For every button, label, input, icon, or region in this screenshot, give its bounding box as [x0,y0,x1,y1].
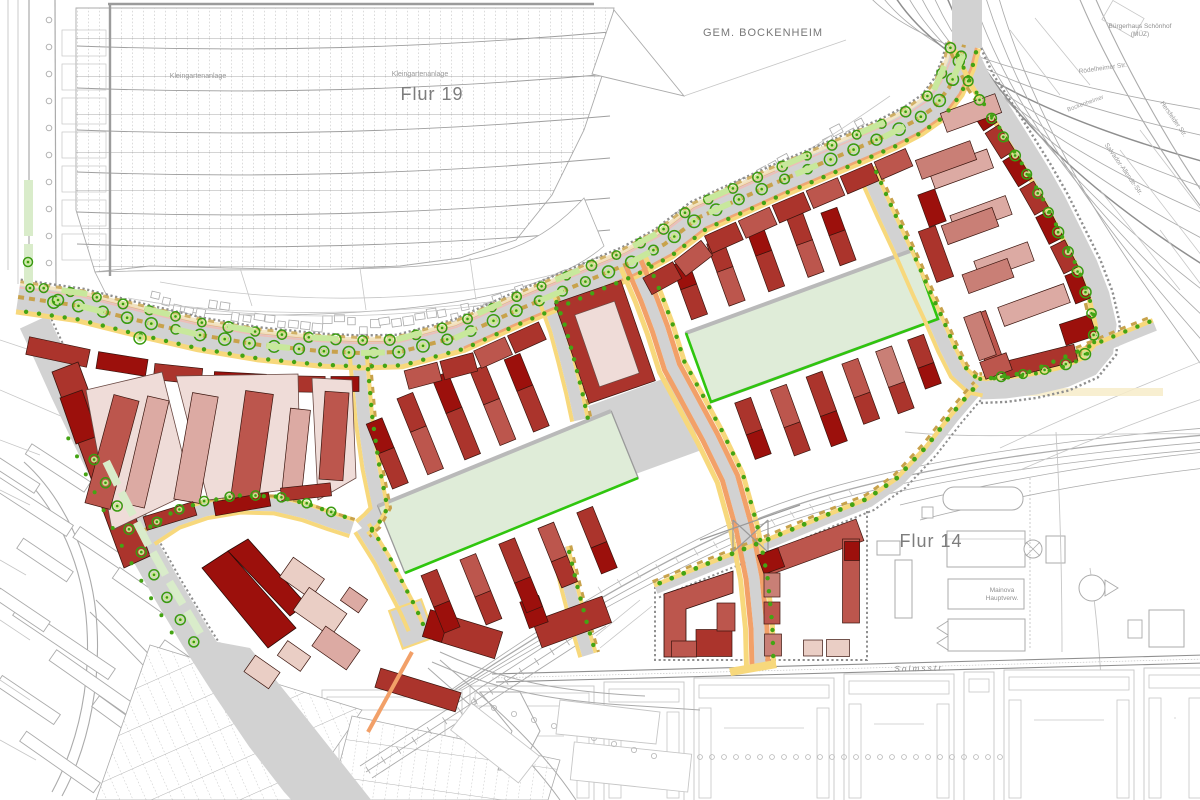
svg-text:S o l m s s t r .: S o l m s s t r . [894,664,945,674]
svg-text:Flur 14: Flur 14 [899,531,962,551]
svg-text:Mainova: Mainova [990,587,1015,594]
svg-text:(MÜZ): (MÜZ) [1131,30,1149,38]
svg-text:Kleingartenanlage: Kleingartenanlage [392,71,449,78]
svg-text:Kleingartenanlage: Kleingartenanlage [170,73,227,80]
svg-text:GEM. BOCKENHEIM: GEM. BOCKENHEIM [703,27,823,39]
svg-text:Bürgerhaus Schönhof: Bürgerhaus Schönhof [1109,23,1172,30]
svg-text:Hauptverw.: Hauptverw. [986,595,1019,602]
svg-text:Flur 19: Flur 19 [400,84,463,104]
